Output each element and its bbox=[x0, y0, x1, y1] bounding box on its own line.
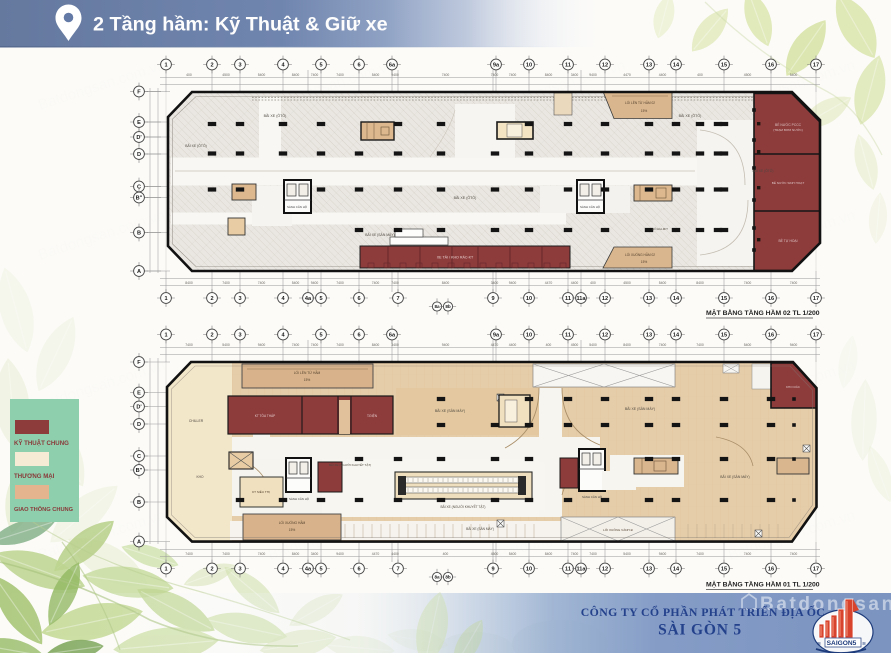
svg-text:5400: 5400 bbox=[258, 73, 266, 77]
svg-text:BỂ TỰ HOẠI: BỂ TỰ HOẠI bbox=[778, 238, 797, 243]
svg-text:9400: 9400 bbox=[509, 281, 517, 285]
svg-text:13: 13 bbox=[646, 333, 652, 339]
svg-text:3400: 3400 bbox=[311, 552, 319, 556]
svg-text:5: 5 bbox=[319, 63, 322, 69]
svg-text:7400: 7400 bbox=[589, 552, 597, 556]
svg-text:9400: 9400 bbox=[589, 73, 597, 77]
svg-text:12: 12 bbox=[602, 567, 608, 573]
svg-text:3400: 3400 bbox=[571, 73, 579, 77]
svg-text:17: 17 bbox=[813, 63, 819, 69]
svg-text:A: A bbox=[137, 540, 141, 546]
svg-text:8400: 8400 bbox=[623, 343, 631, 347]
svg-text:5400: 5400 bbox=[623, 552, 631, 556]
svg-text:4400: 4400 bbox=[659, 73, 667, 77]
svg-text:10: 10 bbox=[526, 333, 532, 339]
svg-text:1: 1 bbox=[164, 63, 167, 69]
svg-text:8a: 8a bbox=[434, 575, 440, 580]
svg-text:4a: 4a bbox=[305, 567, 312, 573]
svg-text:13: 13 bbox=[646, 567, 652, 573]
svg-text:5400: 5400 bbox=[659, 281, 667, 285]
svg-text:11: 11 bbox=[565, 296, 571, 302]
svg-text:9400: 9400 bbox=[311, 281, 319, 285]
svg-text:7400: 7400 bbox=[258, 552, 266, 556]
svg-text:XE TẢI / KHO RÁC-KT: XE TẢI / KHO RÁC-KT bbox=[437, 255, 474, 260]
svg-text:8400: 8400 bbox=[292, 73, 300, 77]
svg-text:9400: 9400 bbox=[336, 552, 344, 556]
svg-text:8b: 8b bbox=[445, 575, 451, 580]
svg-text:5400: 5400 bbox=[509, 552, 517, 556]
svg-text:≋: ≋ bbox=[862, 641, 866, 647]
svg-text:D': D' bbox=[136, 405, 142, 411]
svg-text:E: E bbox=[137, 120, 141, 126]
svg-text:BỂ NƯỚC SINH HOẠT: BỂ NƯỚC SINH HOẠT bbox=[772, 180, 805, 185]
svg-text:11: 11 bbox=[565, 63, 571, 69]
svg-text:7400: 7400 bbox=[696, 343, 704, 347]
svg-text:A: A bbox=[137, 269, 141, 275]
svg-text:3400: 3400 bbox=[491, 281, 499, 285]
svg-text:BÃI XE (SÂN MÁY): BÃI XE (SÂN MÁY) bbox=[365, 232, 394, 237]
svg-text:THƯƠNG MẠI: THƯƠNG MẠI bbox=[14, 473, 55, 480]
svg-text:12: 12 bbox=[602, 296, 608, 302]
svg-text:2: 2 bbox=[210, 63, 213, 69]
svg-text:BÃI XE (ÔTÔ): BÃI XE (ÔTÔ) bbox=[264, 113, 287, 118]
svg-text:SAIGON5: SAIGON5 bbox=[827, 640, 857, 647]
svg-text:HỒ ĐH-M/T: HỒ ĐH-M/T bbox=[652, 226, 668, 231]
svg-text:2: 2 bbox=[210, 567, 213, 573]
svg-text:9400: 9400 bbox=[442, 343, 450, 347]
svg-text:400: 400 bbox=[443, 552, 449, 556]
svg-text:5400: 5400 bbox=[372, 73, 380, 77]
svg-text:5400: 5400 bbox=[744, 343, 752, 347]
svg-text:B: B bbox=[137, 231, 141, 237]
svg-text:7400: 7400 bbox=[391, 281, 399, 285]
svg-text:11a: 11a bbox=[576, 567, 586, 573]
svg-text:1: 1 bbox=[164, 296, 167, 302]
svg-text:KT TÒA THÁP: KT TÒA THÁP bbox=[255, 413, 276, 418]
svg-text:5400: 5400 bbox=[790, 73, 798, 77]
svg-text:5400: 5400 bbox=[222, 343, 230, 347]
svg-text:BÃI XE (ÔTÔ): BÃI XE (ÔTÔ) bbox=[454, 195, 477, 200]
svg-text:C: C bbox=[137, 454, 141, 460]
svg-text:7400: 7400 bbox=[336, 73, 344, 77]
svg-text:16: 16 bbox=[768, 63, 774, 69]
svg-text:6: 6 bbox=[357, 333, 360, 339]
svg-text:SẢNH CĂN HỘ: SẢNH CĂN HỘ bbox=[582, 494, 603, 499]
svg-text:400: 400 bbox=[590, 281, 596, 285]
svg-text:5400: 5400 bbox=[292, 281, 300, 285]
svg-text:KHO RÁC: KHO RÁC bbox=[786, 385, 801, 389]
svg-text:SẢNH CĂN HỘ: SẢNH CĂN HỘ bbox=[289, 496, 310, 501]
svg-text:8400: 8400 bbox=[185, 281, 193, 285]
svg-text:8400: 8400 bbox=[545, 73, 553, 77]
svg-text:5: 5 bbox=[319, 567, 322, 573]
svg-text:4400: 4400 bbox=[509, 343, 517, 347]
svg-text:BỂ NƯỚC PCCC: BỂ NƯỚC PCCC bbox=[775, 122, 802, 127]
svg-text:4400: 4400 bbox=[571, 281, 579, 285]
svg-text:2: 2 bbox=[210, 333, 213, 339]
svg-text:4500: 4500 bbox=[744, 73, 752, 77]
svg-text:11: 11 bbox=[565, 333, 571, 339]
svg-text:(TRẠM BƠM NƯỚC): (TRẠM BƠM NƯỚC) bbox=[773, 127, 803, 132]
svg-text:5: 5 bbox=[319, 333, 322, 339]
svg-text:KT SIÊU THỊ: KT SIÊU THỊ bbox=[252, 489, 270, 494]
svg-text:LỐI LÊN TỪ HẦM: LỐI LÊN TỪ HẦM bbox=[294, 370, 321, 375]
svg-text:15: 15 bbox=[721, 333, 727, 339]
svg-text:11: 11 bbox=[565, 567, 571, 573]
svg-text:4470: 4470 bbox=[491, 343, 499, 347]
svg-text:17: 17 bbox=[813, 333, 819, 339]
svg-text:D: D bbox=[137, 422, 141, 428]
svg-text:15%: 15% bbox=[641, 109, 648, 113]
svg-text:4500: 4500 bbox=[491, 552, 499, 556]
svg-text:1: 1 bbox=[164, 567, 167, 573]
svg-text:17: 17 bbox=[813, 567, 819, 573]
svg-text:15%: 15% bbox=[641, 260, 648, 264]
svg-text:2: 2 bbox=[210, 296, 213, 302]
svg-text:16: 16 bbox=[768, 296, 774, 302]
svg-text:12: 12 bbox=[602, 63, 608, 69]
svg-text:14: 14 bbox=[673, 63, 680, 69]
svg-text:7400: 7400 bbox=[442, 73, 450, 77]
svg-text:KỸ THUẬT CHUNG: KỸ THUẬT CHUNG bbox=[14, 440, 69, 447]
svg-text:GIAO THÔNG CHUNG: GIAO THÔNG CHUNG bbox=[14, 505, 74, 513]
svg-text:BÃI XE (SÂN MÁY): BÃI XE (SÂN MÁY) bbox=[435, 408, 465, 413]
svg-text:9400: 9400 bbox=[790, 343, 798, 347]
svg-text:7400: 7400 bbox=[185, 552, 193, 556]
svg-text:15: 15 bbox=[721, 63, 727, 69]
svg-text:3: 3 bbox=[238, 63, 241, 69]
svg-text:7400: 7400 bbox=[790, 552, 798, 556]
svg-text:9: 9 bbox=[491, 567, 494, 573]
svg-text:7400: 7400 bbox=[696, 552, 704, 556]
svg-text:BÃI XE (NGƯỜI KHUYẾT TẬT): BÃI XE (NGƯỜI KHUYẾT TẬT) bbox=[440, 504, 485, 509]
svg-text:400: 400 bbox=[186, 73, 192, 77]
svg-text:5400: 5400 bbox=[589, 343, 597, 347]
svg-text:7400: 7400 bbox=[744, 281, 752, 285]
svg-text:B: B bbox=[137, 500, 141, 506]
svg-text:4470: 4470 bbox=[623, 73, 631, 77]
svg-text:8400: 8400 bbox=[545, 552, 553, 556]
svg-text:6a: 6a bbox=[389, 333, 396, 339]
svg-text:E: E bbox=[137, 391, 141, 397]
svg-text:9400: 9400 bbox=[659, 552, 667, 556]
svg-text:BÃI XE (NGƯỜI KHUYẾT TẬT): BÃI XE (NGƯỜI KHUYẾT TẬT) bbox=[329, 462, 371, 467]
svg-text:7400: 7400 bbox=[491, 73, 499, 77]
svg-text:6: 6 bbox=[357, 567, 360, 573]
svg-text:KHO: KHO bbox=[197, 475, 204, 479]
svg-text:SẢNH CĂN HỘ: SẢNH CĂN HỘ bbox=[287, 204, 308, 209]
svg-text:10: 10 bbox=[526, 296, 532, 302]
svg-text:16: 16 bbox=[768, 567, 774, 573]
svg-text:8b: 8b bbox=[445, 304, 451, 309]
svg-text:7400: 7400 bbox=[292, 343, 300, 347]
svg-text:D': D' bbox=[136, 135, 142, 141]
svg-text:BÃI XE (ÔTÔ): BÃI XE (ÔTÔ) bbox=[185, 143, 206, 148]
svg-text:4500: 4500 bbox=[222, 73, 230, 77]
svg-text:10: 10 bbox=[526, 567, 532, 573]
svg-text:SÀI GÒN 5: SÀI GÒN 5 bbox=[658, 622, 742, 639]
svg-text:2 Tầng hầm: Kỹ Thuật & Giữ xe: 2 Tầng hầm: Kỹ Thuật & Giữ xe bbox=[93, 14, 388, 36]
svg-text:3400: 3400 bbox=[391, 343, 399, 347]
svg-text:7400: 7400 bbox=[311, 343, 319, 347]
svg-text:10: 10 bbox=[526, 63, 532, 69]
svg-text:3: 3 bbox=[238, 296, 241, 302]
svg-text:F: F bbox=[137, 360, 141, 366]
svg-text:5: 5 bbox=[319, 296, 322, 302]
svg-text:≋: ≋ bbox=[817, 641, 821, 647]
svg-text:LỐI LÊN TỪ HẦM 02: LỐI LÊN TỪ HẦM 02 bbox=[625, 100, 655, 105]
svg-text:3: 3 bbox=[238, 333, 241, 339]
svg-text:7400: 7400 bbox=[311, 73, 319, 77]
svg-text:F: F bbox=[137, 90, 141, 96]
svg-text:3: 3 bbox=[238, 567, 241, 573]
svg-text:7400: 7400 bbox=[744, 552, 752, 556]
svg-text:15: 15 bbox=[721, 296, 727, 302]
svg-text:9400: 9400 bbox=[258, 343, 266, 347]
svg-text:4470: 4470 bbox=[372, 552, 380, 556]
svg-text:7400: 7400 bbox=[222, 281, 230, 285]
svg-text:7400: 7400 bbox=[336, 343, 344, 347]
svg-text:B": B" bbox=[136, 196, 143, 202]
svg-text:4500: 4500 bbox=[571, 343, 579, 347]
svg-text:6: 6 bbox=[357, 63, 360, 69]
svg-text:8400: 8400 bbox=[696, 281, 704, 285]
svg-text:1: 1 bbox=[164, 333, 167, 339]
svg-text:9: 9 bbox=[491, 296, 494, 302]
svg-text:17: 17 bbox=[813, 296, 819, 302]
svg-text:15%: 15% bbox=[289, 528, 296, 532]
svg-text:7400: 7400 bbox=[185, 343, 193, 347]
svg-text:6a: 6a bbox=[389, 63, 396, 69]
svg-text:BÃI XE (SÂN MÁY): BÃI XE (SÂN MÁY) bbox=[466, 526, 494, 531]
svg-text:9400: 9400 bbox=[391, 73, 399, 77]
svg-text:16: 16 bbox=[768, 333, 774, 339]
svg-text:7400: 7400 bbox=[258, 281, 266, 285]
svg-text:4a: 4a bbox=[305, 296, 312, 302]
svg-text:7: 7 bbox=[396, 567, 399, 573]
svg-text:9a: 9a bbox=[493, 63, 500, 69]
svg-text:13: 13 bbox=[646, 296, 652, 302]
svg-text:D: D bbox=[137, 152, 141, 158]
svg-text:BÃI XE (SÂN MÁY): BÃI XE (SÂN MÁY) bbox=[720, 474, 749, 479]
svg-text:7400: 7400 bbox=[659, 343, 667, 347]
svg-text:7: 7 bbox=[396, 296, 399, 302]
svg-text:7400: 7400 bbox=[372, 281, 380, 285]
svg-text:4400: 4400 bbox=[391, 552, 399, 556]
svg-text:LỐI XUỐNG VÀNH Đ: LỐI XUỐNG VÀNH Đ bbox=[603, 527, 634, 532]
svg-text:BÃI XE (ÔTÔ): BÃI XE (ÔTÔ) bbox=[679, 113, 702, 118]
svg-text:8a: 8a bbox=[434, 304, 440, 309]
svg-text:11a: 11a bbox=[576, 296, 586, 302]
svg-text:14: 14 bbox=[673, 333, 680, 339]
svg-text:15: 15 bbox=[721, 567, 727, 573]
svg-text:8400: 8400 bbox=[372, 343, 380, 347]
svg-text:12: 12 bbox=[602, 333, 608, 339]
svg-text:8400: 8400 bbox=[442, 281, 450, 285]
svg-text:SẢNH CĂN HỘ: SẢNH CĂN HỘ bbox=[580, 204, 601, 209]
svg-text:CÔNG TY CỔ PHẦN PHÁT TRIỂN ĐỊA: CÔNG TY CỔ PHẦN PHÁT TRIỂN ĐỊA ỐC bbox=[581, 604, 825, 619]
svg-text:CHILLER: CHILLER bbox=[189, 419, 204, 423]
svg-text:BÃI XE (SÂN MÁY): BÃI XE (SÂN MÁY) bbox=[625, 406, 655, 411]
svg-text:7400: 7400 bbox=[222, 552, 230, 556]
svg-text:LỐI XUỐNG HẦM: LỐI XUỐNG HẦM bbox=[279, 520, 306, 525]
svg-text:7400: 7400 bbox=[571, 552, 579, 556]
svg-text:14: 14 bbox=[673, 296, 680, 302]
svg-text:6: 6 bbox=[357, 296, 360, 302]
svg-text:B": B" bbox=[136, 468, 143, 474]
svg-text:4470: 4470 bbox=[545, 281, 553, 285]
svg-text:7400: 7400 bbox=[336, 281, 344, 285]
svg-text:4500: 4500 bbox=[623, 281, 631, 285]
svg-text:T.ĐIỆN: T.ĐIỆN bbox=[367, 413, 378, 418]
svg-text:14: 14 bbox=[673, 567, 680, 573]
svg-text:400: 400 bbox=[697, 73, 703, 77]
svg-text:400: 400 bbox=[546, 343, 552, 347]
svg-text:9a: 9a bbox=[493, 333, 500, 339]
svg-text:7400: 7400 bbox=[790, 281, 798, 285]
svg-text:13: 13 bbox=[646, 63, 652, 69]
svg-text:BÃI XE (ÔTÔ): BÃI XE (ÔTÔ) bbox=[753, 168, 774, 173]
svg-text:LỐI XUỐNG HẦM 02: LỐI XUỐNG HẦM 02 bbox=[625, 252, 655, 257]
svg-text:8400: 8400 bbox=[292, 552, 300, 556]
svg-text:7400: 7400 bbox=[509, 73, 517, 77]
svg-text:15%: 15% bbox=[304, 378, 311, 382]
